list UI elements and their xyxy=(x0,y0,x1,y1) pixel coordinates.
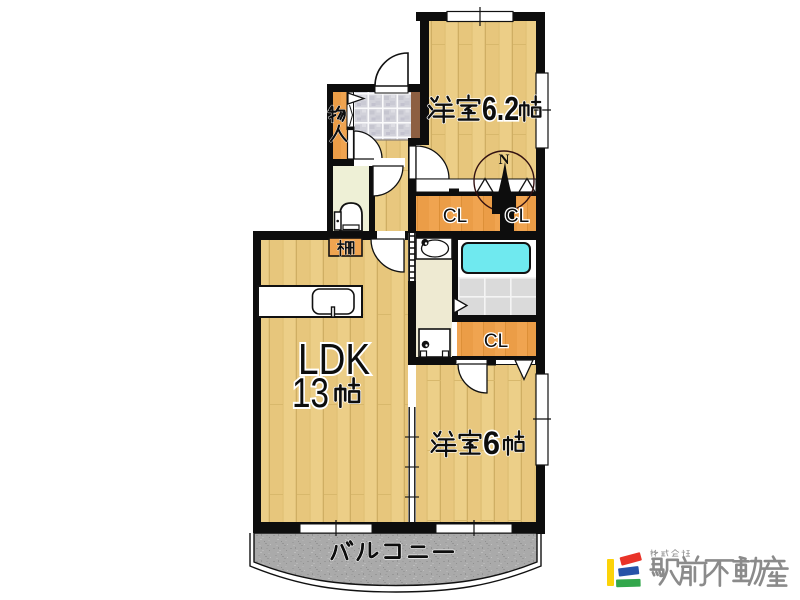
svg-text:CL: CL xyxy=(484,331,508,352)
svg-text:CL: CL xyxy=(505,206,529,227)
svg-text:6: 6 xyxy=(483,425,500,461)
svg-text:6.2: 6.2 xyxy=(482,90,519,127)
svg-text:N: N xyxy=(499,152,510,168)
svg-text:13: 13 xyxy=(292,369,329,416)
svg-text:CL: CL xyxy=(443,206,467,227)
